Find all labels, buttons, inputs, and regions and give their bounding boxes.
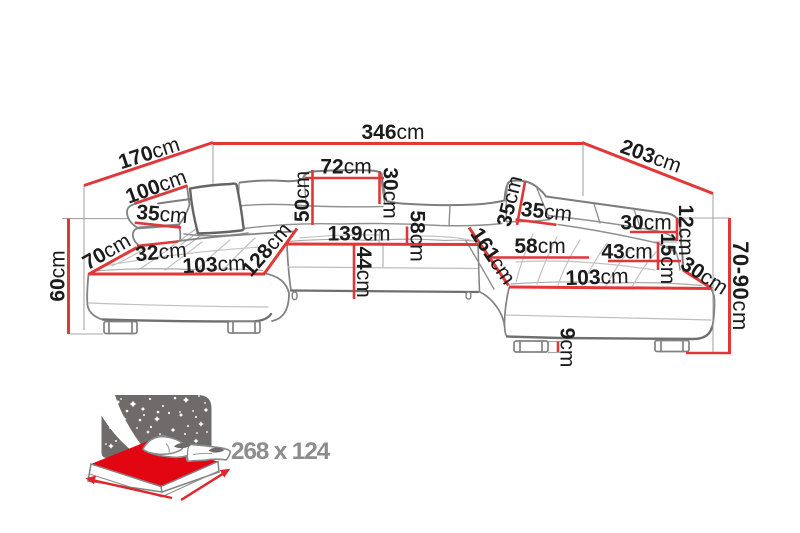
svg-text:15cm: 15cm: [657, 233, 680, 284]
svg-text:30cm: 30cm: [379, 167, 402, 218]
svg-text:139cm: 139cm: [327, 222, 390, 245]
svg-text:72cm: 72cm: [320, 155, 371, 178]
svg-text:103cm: 103cm: [182, 251, 246, 277]
svg-text:60cm: 60cm: [46, 250, 69, 301]
svg-text:346cm: 346cm: [361, 121, 424, 144]
svg-text:43cm: 43cm: [601, 240, 652, 263]
svg-text:32cm: 32cm: [134, 238, 187, 265]
svg-text:58cm: 58cm: [514, 235, 565, 258]
svg-text:58cm: 58cm: [406, 210, 429, 261]
svg-text:268 x 124: 268 x 124: [231, 438, 331, 465]
svg-text:70-90cm: 70-90cm: [729, 241, 754, 331]
svg-text:50cm: 50cm: [291, 171, 314, 222]
svg-text:9cm: 9cm: [556, 328, 579, 368]
svg-text:44cm: 44cm: [353, 246, 376, 297]
svg-text:30cm: 30cm: [620, 211, 671, 234]
svg-text:103cm: 103cm: [565, 264, 629, 289]
svg-text:35cm: 35cm: [135, 200, 188, 227]
